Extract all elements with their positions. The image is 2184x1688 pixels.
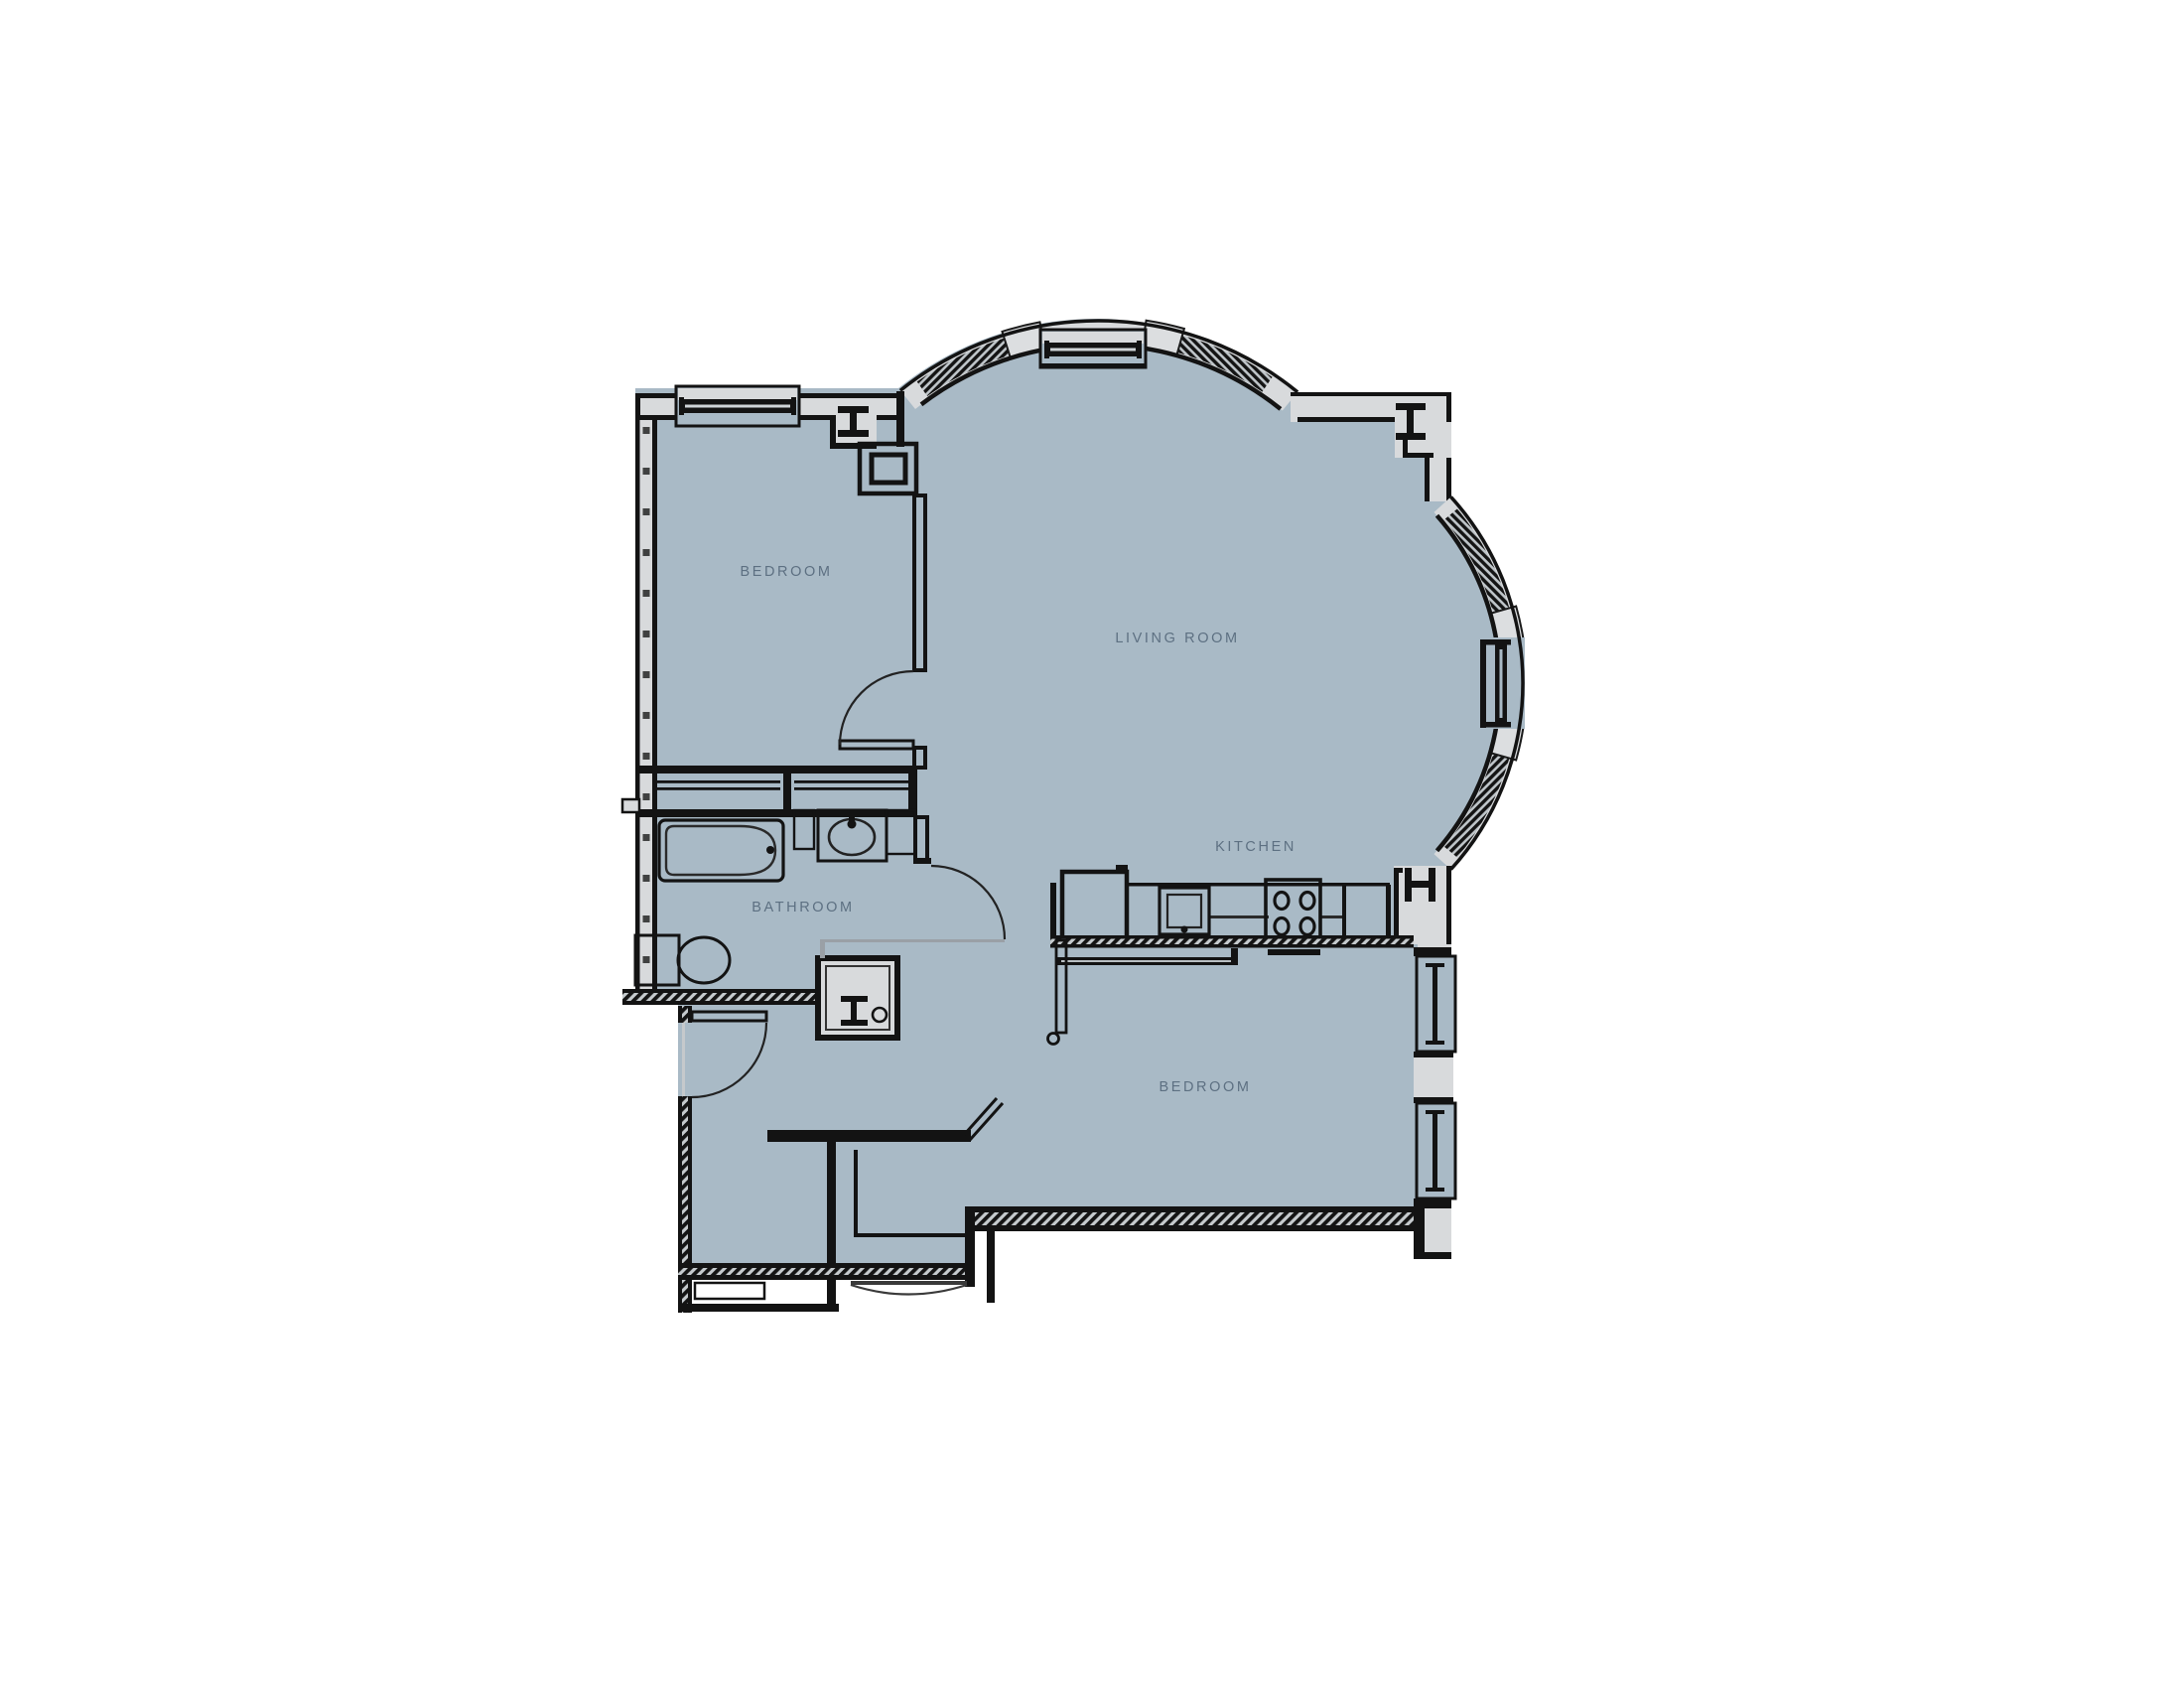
svg-text:BATHROOM: BATHROOM	[751, 900, 855, 915]
svg-text:BEDROOM: BEDROOM	[1159, 1079, 1251, 1095]
svg-text:BEDROOM: BEDROOM	[740, 564, 832, 580]
svg-text:LIVING ROOM: LIVING ROOM	[1115, 631, 1239, 646]
svg-text:KITCHEN: KITCHEN	[1215, 839, 1297, 855]
